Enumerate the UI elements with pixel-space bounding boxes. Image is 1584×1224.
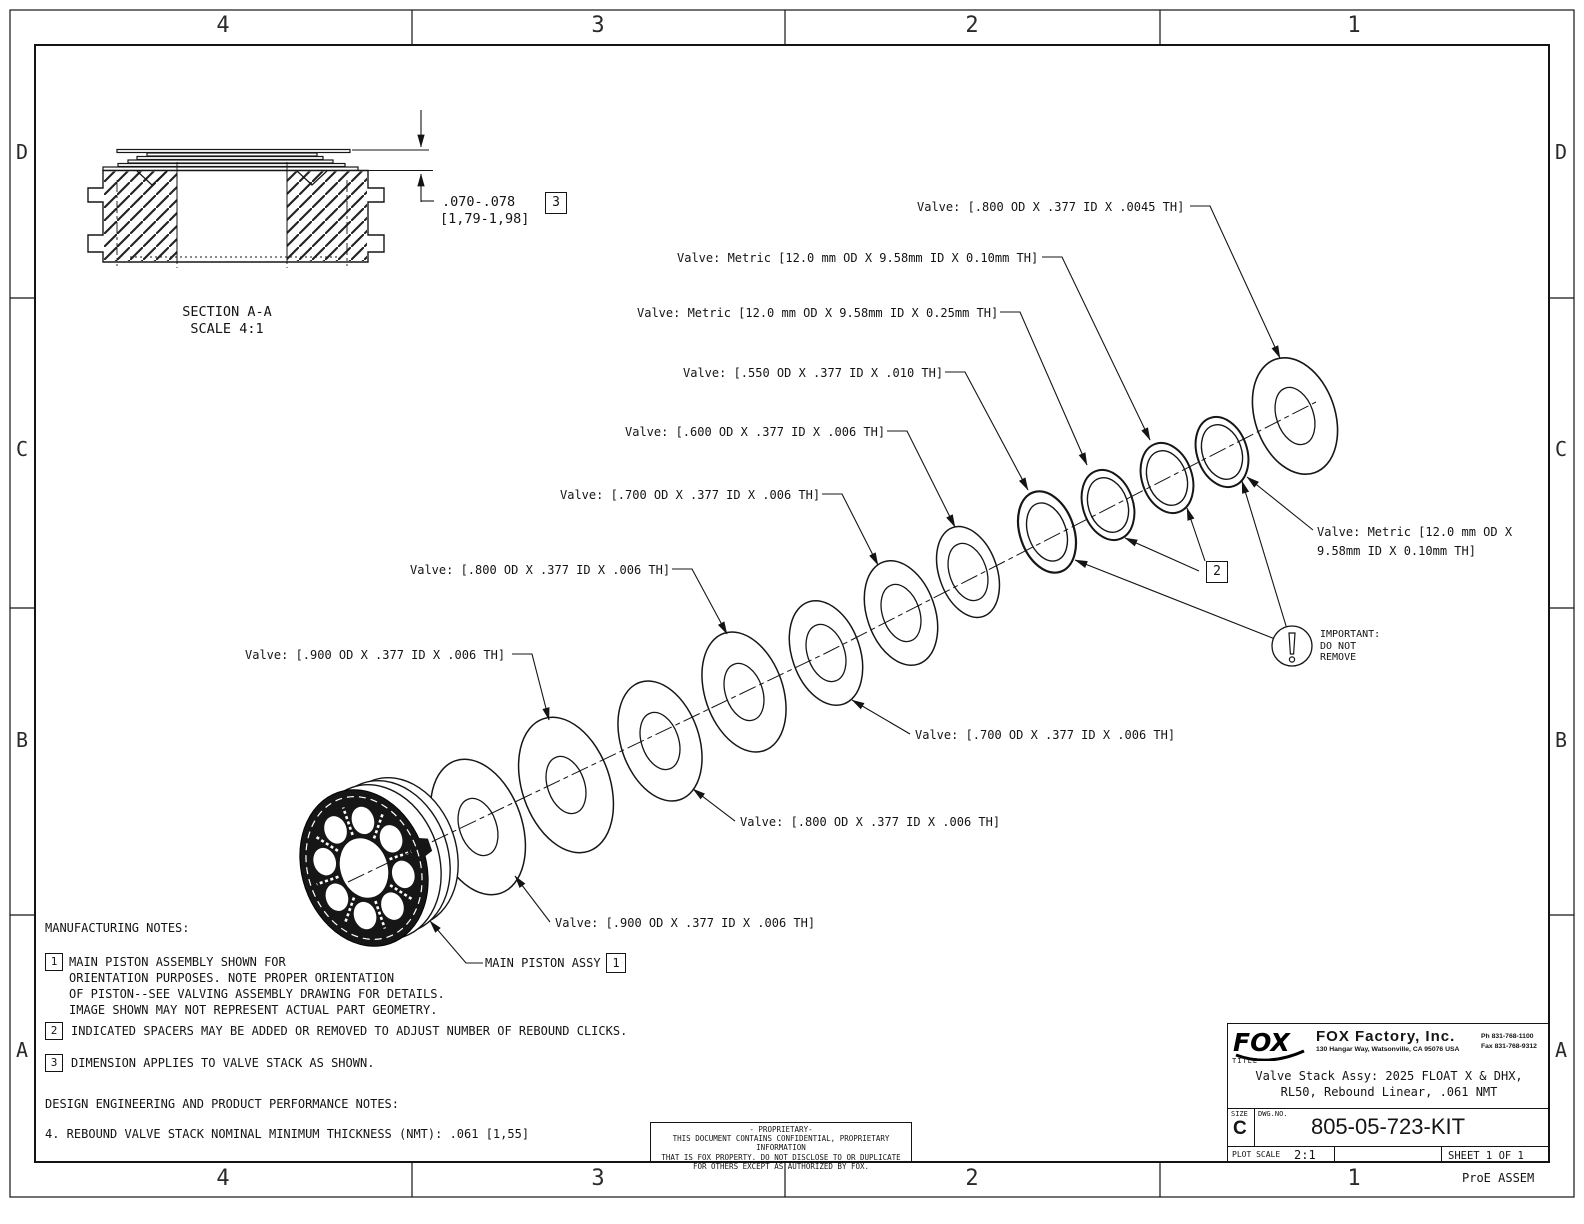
disc-valve-800-0045 xyxy=(1238,346,1353,486)
zone-bottom-2: 2 xyxy=(957,1166,987,1191)
callout-metric-right-line2: 9.58mm ID X 0.10mm TH] xyxy=(1317,542,1512,561)
zone-left-B: B xyxy=(11,728,33,752)
design-notes-heading: DESIGN ENGINEERING AND PRODUCT PERFORMAN… xyxy=(45,1097,399,1111)
zone-left-D: D xyxy=(11,140,33,164)
spacer-flag: 2 xyxy=(1206,561,1228,583)
zone-left-C: C xyxy=(11,437,33,461)
callout-valve-800-bottom: Valve: [.800 OD X .377 ID X .006 TH] xyxy=(740,815,1000,829)
disc-valve-600 xyxy=(925,518,1010,626)
note1-line3: OF PISTON--SEE VALVING ASSEMBLY DRAWING … xyxy=(69,986,445,1002)
svg-text:FOX: FOX xyxy=(1233,1028,1291,1057)
zone-top-4: 4 xyxy=(208,13,238,38)
callout-valve-800-0045: Valve: [.800 OD X .377 ID X .0045 TH] xyxy=(917,200,1184,214)
title-block: FOX FOX Factory, Inc. 130 Hangar Way, Wa… xyxy=(1227,1023,1549,1162)
note2-text: INDICATED SPACERS MAY BE ADDED OR REMOVE… xyxy=(71,1023,627,1039)
callout-valve-700-right: Valve: [.700 OD X .377 ID X .006 TH] xyxy=(915,728,1175,742)
note1-text: MAIN PISTON ASSEMBLY SHOWN FOR ORIENTATI… xyxy=(69,954,445,1018)
important-line1: IMPORTANT: xyxy=(1320,629,1380,641)
company-name: FOX Factory, Inc. xyxy=(1316,1028,1455,1045)
section-caption: SECTION A-A SCALE 4:1 xyxy=(152,304,302,338)
zone-top-1: 1 xyxy=(1339,13,1369,38)
note1-line1: MAIN PISTON ASSEMBLY SHOWN FOR xyxy=(69,954,445,970)
note3-text: DIMENSION APPLIES TO VALVE STACK AS SHOW… xyxy=(71,1055,374,1071)
note4-text: 4. REBOUND VALVE STACK NOMINAL MINIMUM T… xyxy=(45,1126,529,1142)
important-exclamation-icon xyxy=(1272,626,1312,666)
company-fax: Fax 831-768-9312 xyxy=(1481,1043,1537,1050)
callout-metric-right: Valve: Metric [12.0 mm OD X 9.58mm ID X … xyxy=(1317,523,1512,561)
callout-valve-600: Valve: [.600 OD X .377 ID X .006 TH] xyxy=(625,425,885,439)
zone-top-3: 3 xyxy=(583,13,613,38)
drawing-title-line2: RL50, Rebound Linear, .061 NMT xyxy=(1228,1085,1550,1099)
callout-valve-900-bottom: Valve: [.900 OD X .377 ID X .006 TH] xyxy=(555,916,815,930)
note2-flag: 2 xyxy=(45,1022,63,1040)
disc-metric-010-b xyxy=(1187,410,1258,494)
disc-valve-800-a xyxy=(603,670,717,813)
plot-scale-value: 2:1 xyxy=(1294,1148,1316,1162)
plot-scale-label: PLOT SCALE xyxy=(1232,1150,1280,1159)
main-piston-flag: 1 xyxy=(606,953,626,973)
disc-valve-550 xyxy=(1008,483,1086,580)
callout-metric-right-line1: Valve: Metric [12.0 mm OD X xyxy=(1317,523,1512,542)
note3-flag: 3 xyxy=(45,1054,63,1072)
footer-note: ProE ASSEM xyxy=(1462,1171,1534,1185)
disc-metric-025 xyxy=(1073,463,1144,547)
dimension-note-flag: 3 xyxy=(545,192,567,214)
section-view xyxy=(88,110,434,268)
drawing-sheet: 4 3 2 1 4 3 2 1 D C B A D C B A ProE ASS… xyxy=(0,0,1584,1224)
dimension-inch: .070-.078 xyxy=(442,194,515,211)
zone-right-A: A xyxy=(1550,1038,1572,1062)
section-caption-line1: SECTION A-A xyxy=(152,304,302,321)
proprietary-line2: THIS DOCUMENT CONTAINS CONFIDENTIAL, PRO… xyxy=(651,1134,911,1152)
zone-bottom-1: 1 xyxy=(1339,1166,1369,1191)
important-line3: REMOVE xyxy=(1320,652,1380,664)
proprietary-line3: THAT IS FOX PROPERTY. DO NOT DISCLOSE TO… xyxy=(651,1153,911,1162)
important-note: IMPORTANT: DO NOT REMOVE xyxy=(1320,629,1380,664)
callout-metric-010: Valve: Metric [12.0 mm OD X 9.58mm ID X … xyxy=(677,251,1038,265)
note1-line2: ORIENTATION PURPOSES. NOTE PROPER ORIENT… xyxy=(69,970,445,986)
drawing-title-line1: Valve Stack Assy: 2025 FLOAT X & DHX, xyxy=(1228,1069,1550,1083)
important-line2: DO NOT xyxy=(1320,641,1380,653)
callout-valve-900-left: Valve: [.900 OD X .377 ID X .006 TH] xyxy=(245,648,505,662)
proprietary-line1: - PROPRIETARY- xyxy=(651,1125,911,1134)
mfg-notes-heading: MANUFACTURING NOTES: xyxy=(45,921,190,935)
zone-right-C: C xyxy=(1550,437,1572,461)
note1-line4: IMAGE SHOWN MAY NOT REPRESENT ACTUAL PAR… xyxy=(69,1002,445,1018)
dwg-number: 805-05-723-KIT xyxy=(1268,1114,1508,1140)
zone-left-A: A xyxy=(11,1038,33,1062)
zone-right-B: B xyxy=(1550,728,1572,752)
sheet-number: SHEET 1 OF 1 xyxy=(1448,1150,1524,1162)
dimension-mm: [1,79-1,98] xyxy=(440,211,529,228)
zone-right-D: D xyxy=(1550,140,1572,164)
title-label: TITLE xyxy=(1232,1057,1258,1065)
fox-logo: FOX xyxy=(1232,1027,1308,1061)
size-value: C xyxy=(1233,1118,1247,1140)
proprietary-notice: - PROPRIETARY- THIS DOCUMENT CONTAINS CO… xyxy=(650,1122,912,1162)
zone-top-2: 2 xyxy=(957,13,987,38)
size-label: SIZE xyxy=(1231,1110,1248,1118)
company-address: 130 Hangar Way, Watsonville, CA 95076 US… xyxy=(1316,1046,1459,1053)
callout-valve-700-left: Valve: [.700 OD X .377 ID X .006 TH] xyxy=(560,488,820,502)
zone-bottom-4: 4 xyxy=(208,1166,238,1191)
company-phone: Ph 831-768-1100 xyxy=(1481,1033,1534,1040)
callout-metric-025: Valve: Metric [12.0 mm OD X 9.58mm ID X … xyxy=(637,306,998,320)
section-caption-line2: SCALE 4:1 xyxy=(152,321,302,338)
callout-main-piston: MAIN PISTON ASSY xyxy=(485,956,601,970)
note1-flag: 1 xyxy=(45,953,63,971)
zone-bottom-3: 3 xyxy=(583,1166,613,1191)
disc-valve-700-b xyxy=(851,551,950,675)
callout-valve-550: Valve: [.550 OD X .377 ID X .010 TH] xyxy=(683,366,943,380)
proprietary-line4: FOR OTHERS EXCEPT AS AUTHORIZED BY FOX. xyxy=(651,1162,911,1171)
callout-valve-800-left: Valve: [.800 OD X .377 ID X .006 TH] xyxy=(410,563,670,577)
